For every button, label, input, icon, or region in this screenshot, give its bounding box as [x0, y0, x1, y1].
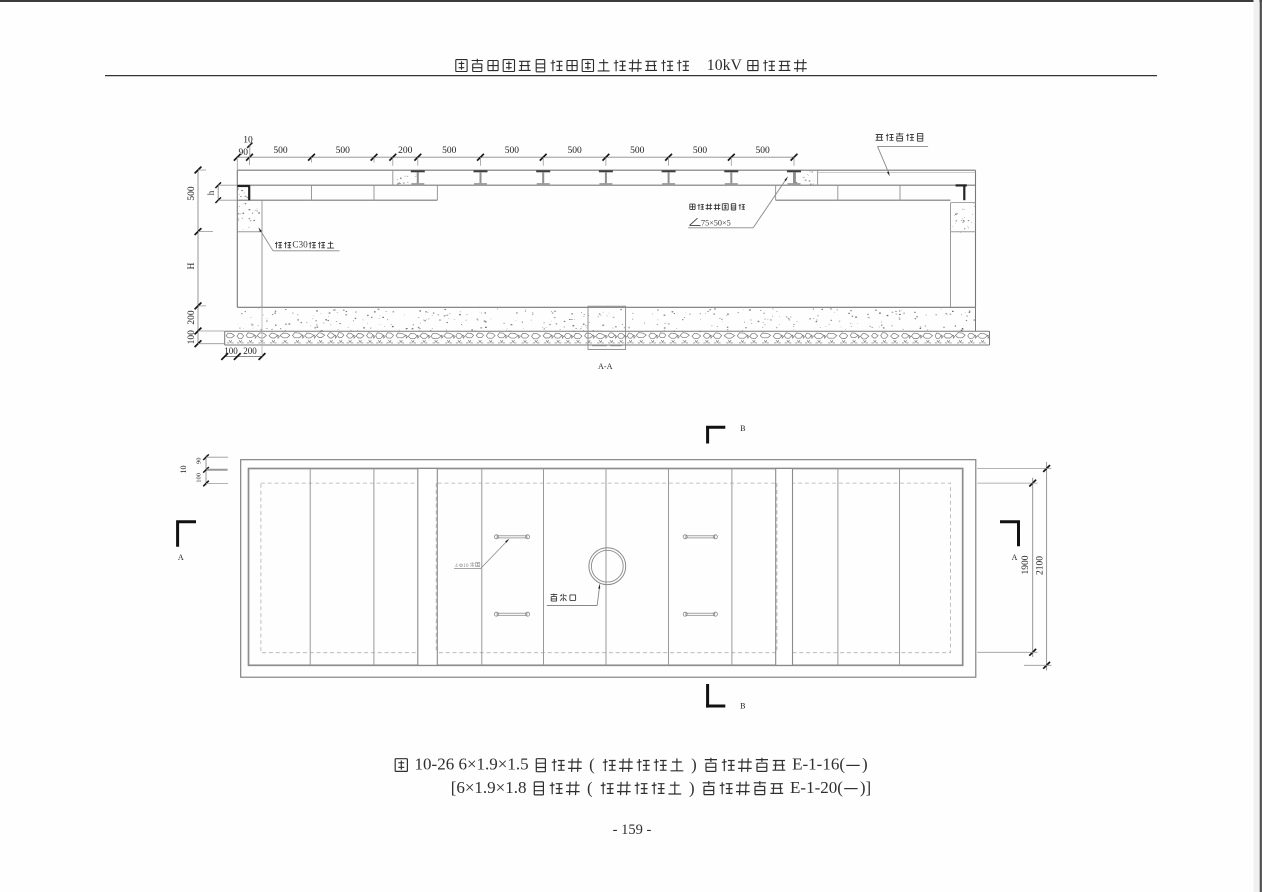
svg-text:(: (: [587, 778, 593, 797]
svg-text:): ): [691, 755, 697, 774]
svg-text:E-1-16(: E-1-16(: [788, 755, 845, 774]
svg-text:10kV: 10kV: [707, 57, 746, 74]
svg-text:500: 500: [505, 146, 520, 156]
svg-text:): ): [689, 778, 695, 797]
svg-text:75×50×5: 75×50×5: [701, 218, 731, 227]
svg-text:A: A: [1012, 553, 1018, 562]
svg-text:200: 200: [398, 146, 413, 156]
svg-text:500: 500: [187, 186, 197, 201]
svg-text:(: (: [589, 755, 595, 774]
svg-text:A: A: [178, 553, 184, 562]
svg-text:200: 200: [187, 310, 197, 325]
svg-text:100: 100: [196, 473, 203, 483]
svg-text:10-26 6×1.9×1.5: 10-26 6×1.9×1.5: [410, 755, 533, 774]
svg-text:10: 10: [179, 466, 188, 474]
svg-text:h: h: [206, 190, 216, 195]
svg-text:500: 500: [273, 146, 288, 156]
svg-text:C30: C30: [292, 240, 308, 250]
svg-text:[6×1.9×1.8: [6×1.9×1.8: [451, 778, 531, 797]
svg-text:1900: 1900: [1021, 555, 1031, 574]
svg-text:H: H: [187, 262, 197, 269]
svg-text:500: 500: [630, 146, 645, 156]
svg-text:500: 500: [693, 146, 708, 156]
svg-text:100: 100: [187, 330, 197, 345]
svg-text:- 159 -: - 159 -: [613, 822, 652, 838]
svg-text:A-A: A-A: [598, 362, 613, 371]
svg-text:90: 90: [238, 148, 248, 158]
svg-text:)]: )]: [860, 778, 871, 797]
svg-text:100: 100: [224, 346, 238, 356]
svg-text:500: 500: [442, 146, 457, 156]
svg-text:): ): [862, 755, 868, 774]
svg-text:B: B: [740, 424, 745, 433]
svg-text:500: 500: [336, 146, 351, 156]
svg-text:90: 90: [196, 458, 203, 465]
svg-text:2100: 2100: [1035, 556, 1045, 575]
svg-text:500: 500: [567, 146, 582, 156]
svg-text:500: 500: [755, 146, 770, 156]
svg-text:200: 200: [243, 346, 257, 356]
svg-text:E-1-20(: E-1-20(: [786, 778, 843, 797]
svg-text:B: B: [740, 701, 745, 710]
